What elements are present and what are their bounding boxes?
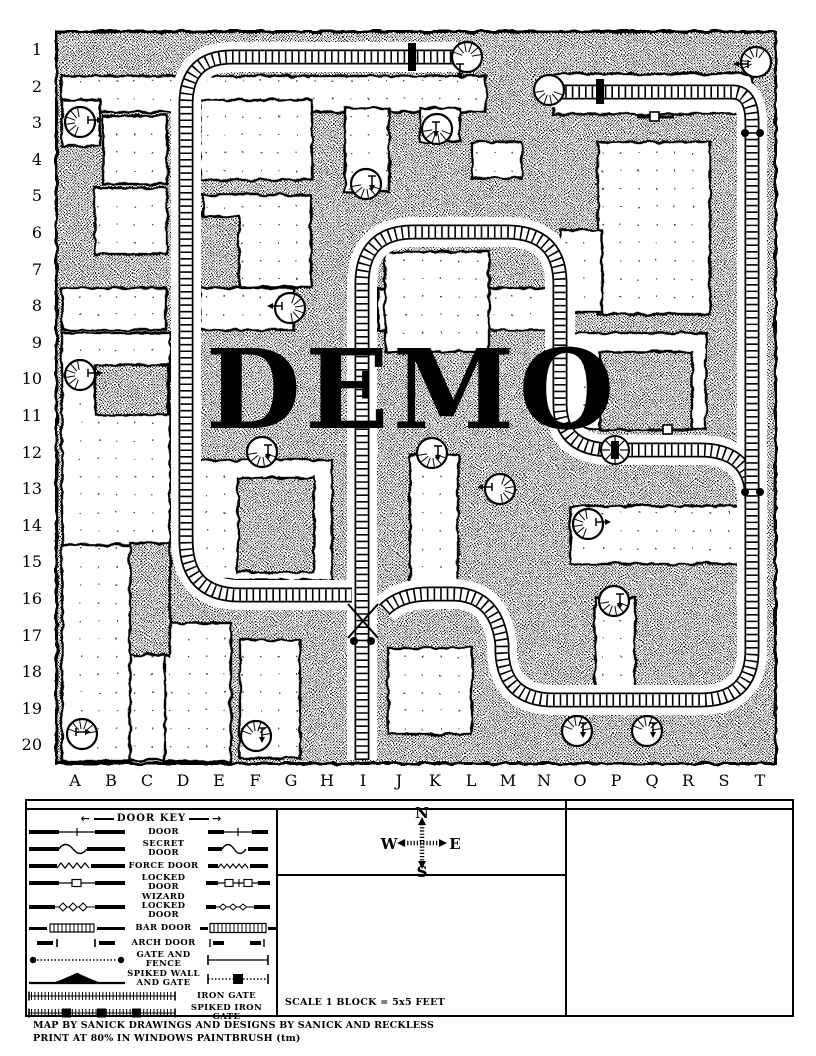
secret-door-symbol-icon — [200, 842, 276, 856]
credits-line-1: MAP BY SANICK DRAWINGS AND DESIGNS BY SA… — [33, 1019, 434, 1032]
rock-island — [130, 543, 170, 655]
col-label: O — [573, 771, 586, 790]
col-label: R — [682, 771, 695, 790]
row-label: 18 — [22, 662, 42, 681]
col-label: I — [360, 771, 366, 790]
spiked-wall-symbol-icon — [27, 972, 127, 986]
room — [165, 623, 231, 761]
col-label: P — [611, 771, 622, 790]
legend-row-iron-gate: IRON GATE — [27, 989, 276, 1003]
row-label: 10 — [22, 369, 42, 388]
legend-row-arch-door: ARCH DOOR — [27, 936, 276, 950]
col-label: M — [500, 771, 516, 790]
col-label: E — [213, 771, 225, 790]
demo-watermark: DEMO — [206, 325, 619, 454]
secret-door-symbol-icon — [27, 842, 127, 856]
compass-arrowheads — [397, 817, 447, 869]
cave-entrance — [351, 169, 381, 199]
bar-gate — [408, 43, 416, 71]
row-label: 16 — [22, 589, 42, 608]
row-label: 17 — [22, 626, 42, 645]
col-label: Q — [645, 771, 658, 790]
legend-row-door: DOOR — [27, 825, 276, 839]
row-label: 8 — [32, 296, 42, 315]
row-label: 9 — [32, 333, 42, 352]
credits-line-2: PRINT AT 80% IN WINDOWS PAINTBRUSH (tm) — [33, 1032, 434, 1045]
cave-entrance — [452, 42, 482, 72]
col-label: J — [394, 771, 402, 790]
cave-entrance — [275, 293, 305, 323]
legend-panel: ← DOOR KEY → DOOR SECRET DOOR — [25, 799, 794, 1017]
row-label: 4 — [32, 150, 42, 169]
compass-north-label: N — [415, 806, 429, 822]
legend-label: FORCE DOOR — [127, 862, 200, 871]
col-label: A — [68, 771, 81, 790]
compass-south-label: S — [416, 863, 427, 878]
legend-row-secret-door: SECRET DOOR — [27, 840, 276, 858]
col-label: S — [719, 771, 730, 790]
dungeon-map: DEMO 1 2 3 4 5 6 7 8 9 10 11 12 13 14 15… — [0, 0, 816, 794]
room — [62, 288, 166, 330]
legend-row-wizard-locked-door: WIZARD LOCKED DOOR — [27, 893, 276, 920]
col-label: D — [177, 771, 190, 790]
row-label: 13 — [22, 479, 42, 498]
legend-row-spiked-wall-and-gate: SPIKED WALL AND GATE — [27, 970, 276, 988]
row-label: 2 — [32, 77, 42, 96]
room — [472, 142, 522, 178]
scale-note: SCALE 1 BLOCK = 5x5 FEET — [285, 997, 445, 1008]
row-label: 1 — [32, 40, 42, 59]
gate-and-fence-symbol-icon — [27, 953, 127, 967]
row-label: 11 — [22, 406, 42, 425]
legend-label: ARCH DOOR — [127, 939, 200, 948]
col-label: K — [429, 771, 442, 790]
room — [200, 100, 312, 180]
row-label: 20 — [22, 735, 42, 754]
wizard-locked-door-symbol-icon — [27, 900, 127, 914]
panel-divider — [565, 801, 567, 1015]
legend-row-gate-and-fence: GATE AND FENCE — [27, 951, 276, 969]
legend-label: DOOR — [127, 828, 200, 837]
gate-and-fence-symbol-icon — [200, 953, 276, 967]
cave-entrance — [599, 586, 629, 616]
locked-door-latch — [650, 112, 659, 121]
row-label: 14 — [22, 516, 42, 535]
room — [410, 455, 458, 583]
rock-island — [95, 365, 168, 415]
col-label: N — [537, 771, 551, 790]
room — [388, 648, 472, 734]
legend-label: BAR DOOR — [127, 924, 200, 933]
row-label: 5 — [32, 186, 42, 205]
legend-label: SECRET DOOR — [127, 840, 200, 858]
cave-entrance — [65, 360, 95, 390]
legend-label: IRON GATE — [177, 992, 276, 1001]
compass-west-label: W — [379, 835, 398, 853]
door-symbol-icon — [27, 825, 127, 839]
cave-entrance — [241, 721, 271, 751]
arrow-right-icon: → — [212, 815, 222, 823]
arch-door-symbol-icon — [200, 936, 276, 950]
legend-row-force-door: FORCE DOOR — [27, 859, 276, 873]
cave-entrance — [422, 114, 452, 144]
room — [598, 142, 710, 314]
compass-rose: N S W E — [278, 810, 565, 874]
cave-entrance — [573, 509, 603, 539]
room — [103, 116, 167, 184]
col-label: H — [320, 771, 334, 790]
row-label: 12 — [22, 443, 42, 462]
row-label: 6 — [32, 223, 42, 242]
col-label: L — [466, 771, 477, 790]
cave-entrance — [632, 716, 662, 746]
cave-entrance — [534, 75, 564, 105]
locked-door-symbol-icon — [27, 876, 127, 890]
force-door-symbol-icon — [200, 859, 276, 873]
door-symbol-icon — [200, 825, 276, 839]
bar-door-symbol-icon — [200, 921, 276, 935]
row-label: 19 — [22, 699, 42, 718]
col-label: T — [755, 771, 766, 790]
spiked-gate-symbol-icon — [200, 972, 276, 986]
col-label: F — [249, 771, 260, 790]
arrow-left-icon: ← — [81, 815, 91, 823]
iron-gate-symbol-icon — [27, 989, 177, 1003]
credits: MAP BY SANICK DRAWINGS AND DESIGNS BY SA… — [33, 1019, 434, 1045]
locked-door-latch — [663, 425, 672, 434]
cave-entrance — [65, 107, 95, 137]
legend-label: WIZARD LOCKED DOOR — [127, 893, 200, 920]
force-door-symbol-icon — [27, 859, 127, 873]
legend-label: LOCKED DOOR — [127, 874, 200, 892]
arch-door-symbol-icon — [27, 936, 127, 950]
cave-entrance — [67, 719, 97, 749]
door-key-title-text: DOOR KEY — [117, 813, 186, 824]
wizard-locked-door-symbol-icon — [200, 900, 276, 914]
col-label: C — [141, 771, 153, 790]
bar-gate — [596, 79, 604, 104]
spiked-iron-gate-symbol-icon — [27, 1006, 177, 1020]
bar-door-symbol-icon — [27, 921, 127, 935]
room — [95, 188, 167, 254]
door-key-legend: ← DOOR KEY → DOOR SECRET DOOR — [27, 810, 276, 1015]
legend-label: GATE AND FENCE — [127, 951, 200, 969]
map-page: DEMO 1 2 3 4 5 6 7 8 9 10 11 12 13 14 15… — [0, 0, 816, 1056]
cave-entrance — [562, 716, 592, 746]
row-label: 15 — [22, 552, 42, 571]
rock-island — [238, 478, 314, 572]
legend-row-locked-door: LOCKED DOOR — [27, 874, 276, 892]
col-labels: A B C D E F G H I J K L M N O P Q R S T — [68, 771, 765, 790]
col-label: B — [105, 771, 117, 790]
row-label: 7 — [32, 260, 42, 279]
row-labels: 1 2 3 4 5 6 7 8 9 10 11 12 13 14 15 16 1… — [22, 40, 42, 754]
door-key-title: ← DOOR KEY → — [27, 813, 276, 824]
row-label: 3 — [32, 113, 42, 132]
legend-row-bar-door: BAR DOOR — [27, 921, 276, 935]
legend-label: SPIKED WALL AND GATE — [127, 970, 200, 988]
compass-cross — [404, 824, 440, 862]
compass-east-label: E — [449, 835, 460, 853]
cave-entrance — [485, 474, 515, 504]
locked-door-symbol-icon — [200, 876, 276, 890]
col-label: G — [285, 771, 298, 790]
